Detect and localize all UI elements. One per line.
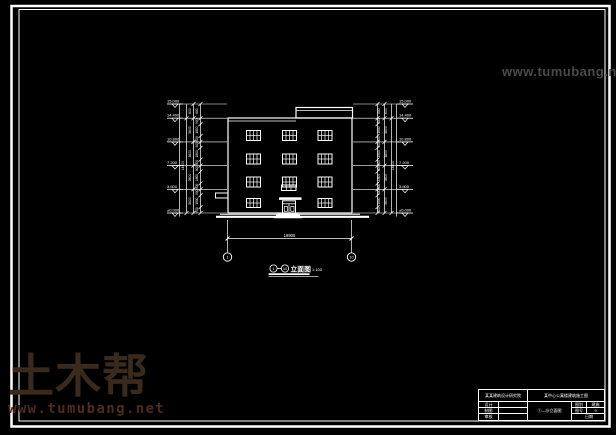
drawing-title-text: 立面图 [291, 265, 312, 274]
elevation-value: 10.800 [167, 136, 180, 141]
title-block: 某某建筑设计研究院 某中心公寓楼建筑施工图 设计 制图 审核 ①—⑩立面图 图别… [478, 389, 605, 421]
elevation-marker-icon [172, 142, 178, 146]
dimension-text: 600 [384, 108, 388, 114]
dimension-text: 600 [377, 108, 381, 114]
elevation-marker-icon [402, 118, 408, 122]
elevation-value: 14.400 [399, 113, 412, 118]
elevation-value: 3.600 [167, 184, 178, 189]
axis-bubble-right-number: 10 [349, 256, 353, 260]
window [247, 199, 261, 208]
window [247, 177, 261, 187]
title-block-checker-value [499, 414, 528, 420]
cad-canvas: 18900 1 10 1 10 立面图 1:100 15.00014.40010… [0, 0, 616, 435]
elevation-marker-icon [172, 189, 178, 193]
dimension-text: 3600 [384, 174, 388, 182]
dimension-text: 900 [377, 142, 381, 148]
dimension-text: 900 [377, 189, 381, 195]
dimension-text: 3600 [188, 126, 192, 134]
elevation-value: 14.400 [167, 113, 180, 118]
dimension-text: 3600 [188, 197, 192, 205]
dimension-text: 900 [195, 160, 199, 166]
title-underline-thick [269, 273, 310, 275]
elevation-value: 15.000 [167, 99, 180, 104]
elevation-marker-icon [402, 213, 408, 217]
elevation-value: ±0.000 [167, 208, 180, 213]
dimension-text: 3600 [384, 126, 388, 134]
title-block-project: 某中心公寓楼建筑施工图 [528, 390, 604, 402]
side-canopy [216, 193, 229, 198]
dimension-text: 3600 [384, 150, 388, 158]
dimension-text: 14400 [391, 161, 395, 171]
window [283, 131, 297, 141]
entrance-steps [274, 214, 302, 219]
overall-width-dimension-text: 18900 [284, 233, 296, 238]
window [318, 199, 332, 208]
elevation-value: 15.000 [399, 99, 412, 104]
dimension-text: 3600 [188, 150, 192, 158]
stair-window [282, 185, 297, 191]
dimension-text: 900 [195, 183, 199, 189]
dimension-text: 900 [195, 118, 199, 124]
dimension-text: 3600 [188, 174, 192, 182]
dimension-text: 1800 [195, 150, 199, 157]
elevation-value: 10.800 [399, 136, 412, 141]
elevation-value: ±0.000 [399, 208, 412, 213]
title-block-institute: 某某建筑设计研究院 [479, 390, 528, 402]
elevation-marker-icon [402, 189, 408, 193]
dimension-text: 900 [195, 136, 199, 142]
entrance-canopy [279, 197, 302, 200]
elevation-value: 3.600 [399, 184, 410, 189]
dimension-text: 900 [377, 207, 381, 213]
window [318, 154, 332, 164]
title-block-date-label: 日期 [572, 414, 604, 420]
dimension-text: 1800 [377, 150, 381, 157]
drawing-title: 1 10 立面图 1:100 [269, 265, 323, 277]
dimension-text: 14400 [181, 161, 185, 171]
entrance [274, 197, 302, 218]
dimension-text: 900 [195, 166, 199, 172]
dimension-text: 900 [195, 207, 199, 213]
dimension-text: 900 [377, 166, 381, 172]
title-axis-end: 10 [283, 267, 287, 271]
dimension-text: 1800 [377, 126, 381, 133]
dimension-text: 900 [195, 142, 199, 148]
elevation-marker-icon [172, 213, 178, 217]
dimension-text: 1800 [377, 197, 381, 204]
elevation-marker-icon [172, 118, 178, 122]
dimension-text: 600 [195, 108, 199, 114]
elevation-marker-icon [402, 104, 408, 108]
elevation-value: 7.200 [167, 160, 178, 165]
elevation-marker-icon [172, 166, 178, 170]
window [318, 131, 332, 141]
dimension-text: 1800 [195, 126, 199, 133]
dimension-text: 1800 [195, 197, 199, 204]
axis-bubble-left-number: 1 [226, 256, 228, 260]
elevation-marker-icon [402, 166, 408, 170]
overall-dimension: 18900 1 10 [223, 220, 355, 261]
window [247, 131, 261, 141]
dimension-text: 3600 [384, 197, 388, 205]
title-axis-start: 1 [273, 267, 275, 271]
roof-parapet-raised [296, 108, 353, 119]
dimension-text: 1800 [195, 174, 199, 181]
dimension-text: 600 [188, 108, 192, 114]
window [283, 154, 297, 164]
tumubang-logo-text: 土木帮 [8, 352, 168, 400]
tumubang-logo-url: www.tumubang.net [8, 401, 168, 417]
elevation-marker-icon [402, 142, 408, 146]
tumubang-logo: 土木帮 www.tumubang.net [8, 352, 168, 417]
window [247, 154, 261, 164]
dimension-text: 900 [377, 118, 381, 124]
elevation-value: 7.200 [399, 160, 410, 165]
dimension-text: 900 [195, 189, 199, 195]
elevation-marker-icon [172, 104, 178, 108]
dimension-text: 1800 [377, 174, 381, 181]
window [318, 177, 332, 187]
title-block-checker-label: 审核 [479, 414, 499, 420]
drawing-scale-text: 1:100 [312, 267, 323, 272]
title-block-drawing-name: ①—⑩立面图 [528, 402, 572, 420]
watermark-url-top-right: www.tumubang.net [502, 64, 616, 79]
